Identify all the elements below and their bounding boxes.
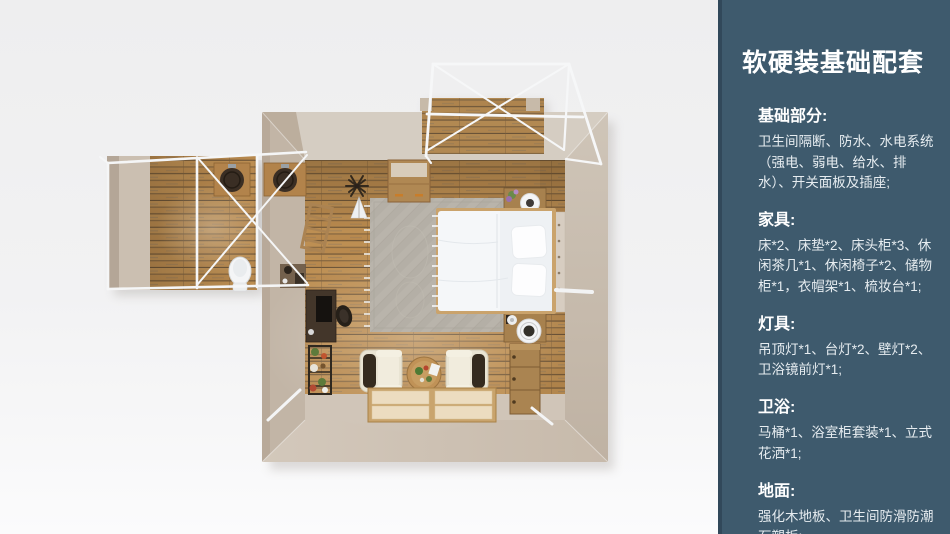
section-heading: 卫浴: (758, 393, 934, 417)
section-heading: 家具: (758, 206, 934, 230)
round-tea-table (407, 357, 441, 391)
section-body: 吊顶灯*1、台灯*2、壁灯*2、卫浴镜前灯*1; (758, 340, 934, 381)
canopy-deck (420, 98, 544, 154)
curtain-rod (556, 290, 592, 292)
wardrobe-cabinet (388, 160, 430, 202)
section-body: 卫生间隔断、防水、水电系统（强电、弱电、给水、排水）、开关面板及插座; (758, 132, 934, 193)
section-body: 强化木地板、卫生间防滑防潮石塑板; (758, 507, 934, 534)
section-heading: 灯具: (758, 310, 934, 334)
sidebar-title: 软硬装基础配套 (742, 50, 934, 76)
package-sidebar: 软硬装基础配套 基础部分: 卫生间隔断、防水、水电系统（强电、弱电、给水、排水）… (718, 0, 950, 534)
section-heading: 基础部分: (758, 102, 934, 126)
section-lighting: 灯具: 吊顶灯*1、台灯*2、壁灯*2、卫浴镜前灯*1; (758, 310, 934, 381)
section-basics: 基础部分: 卫生间隔断、防水、水电系统（强电、弱电、给水、排水）、开关面板及插座… (758, 102, 934, 193)
floorplan-render (0, 0, 720, 534)
slide: 软硬装基础配套 基础部分: 卫生间隔断、防水、水电系统（强电、弱电、给水、排水）… (0, 0, 950, 534)
section-furniture: 家具: 床*2、床垫*2、床头柜*3、休闲茶几*1、休闲椅子*2、储物柜*1，衣… (758, 206, 934, 297)
section-bathroom: 卫浴: 马桶*1、浴室柜套装*1、立式花洒*1; (758, 393, 934, 464)
drawer-chest (510, 344, 540, 414)
double-bed (432, 208, 556, 314)
nightstand-bottom (504, 312, 546, 343)
section-body: 马桶*1、浴室柜套装*1、立式花洒*1; (758, 423, 934, 464)
armchair-right (446, 350, 488, 392)
tatami-platform (368, 388, 496, 422)
section-flooring: 地面: 强化木地板、卫生间防滑防潮石塑板; (758, 477, 934, 534)
armchair-left (360, 350, 402, 392)
section-body: 床*2、床垫*2、床头柜*3、休闲茶几*1、休闲椅子*2、储物柜*1，衣帽架*1… (758, 236, 934, 297)
section-heading: 地面: (758, 477, 934, 501)
